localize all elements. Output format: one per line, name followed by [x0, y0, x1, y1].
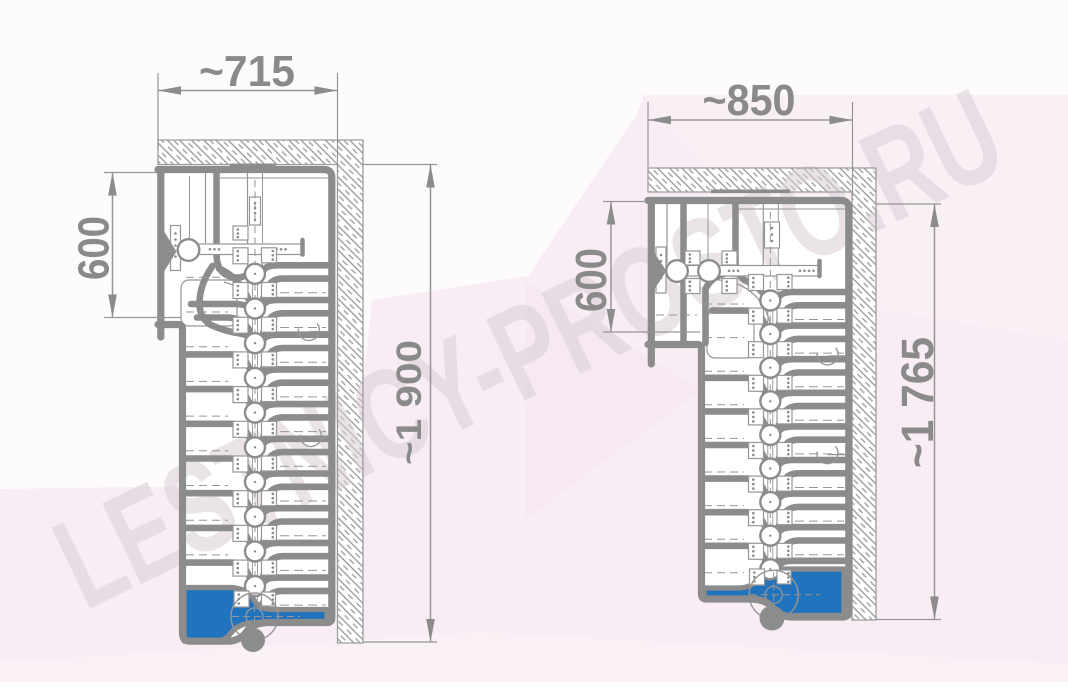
svg-text:600: 600	[70, 216, 119, 280]
svg-text:600: 600	[567, 248, 616, 312]
svg-text:~1 900: ~1 900	[390, 340, 429, 465]
svg-text:~715: ~715	[199, 47, 295, 96]
svg-text:~1 765: ~1 765	[892, 337, 943, 468]
svg-text:~850: ~850	[703, 76, 796, 125]
